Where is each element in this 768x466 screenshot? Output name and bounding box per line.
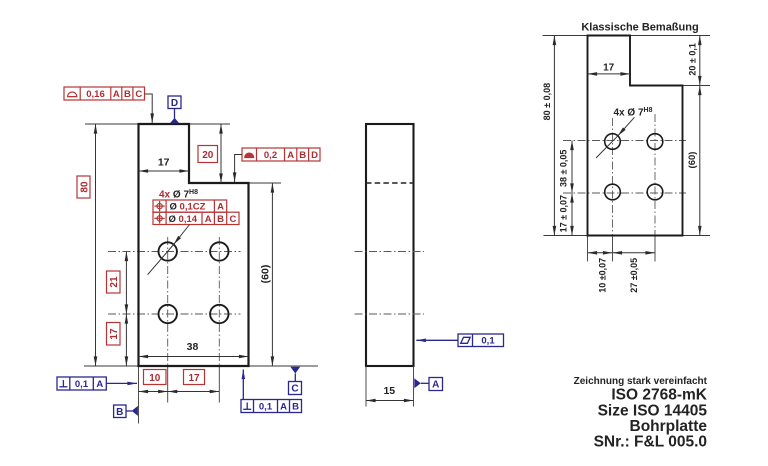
- svg-text:A: A: [280, 402, 287, 413]
- svg-text:A: A: [287, 150, 294, 161]
- svg-text:Ø 0,14: Ø 0,14: [169, 214, 198, 225]
- svg-text:D: D: [311, 150, 318, 161]
- svg-text:17 ± 0,07: 17 ± 0,07: [558, 195, 568, 232]
- svg-text:B: B: [299, 150, 306, 161]
- svg-text:80 ± 0,08: 80 ± 0,08: [542, 83, 552, 120]
- svg-text:17: 17: [603, 63, 615, 74]
- svg-text:17: 17: [109, 328, 120, 340]
- svg-text:B: B: [217, 214, 224, 225]
- svg-text:ISO 2768-mK: ISO 2768-mK: [611, 387, 707, 404]
- svg-text:0,1: 0,1: [75, 379, 89, 390]
- svg-text:(60): (60): [259, 265, 271, 284]
- svg-text:20: 20: [202, 150, 214, 161]
- svg-text:B: B: [292, 402, 299, 413]
- svg-text:B: B: [124, 89, 131, 100]
- svg-text:Bohrplatte: Bohrplatte: [630, 418, 708, 435]
- svg-text:Size ISO 14405: Size ISO 14405: [598, 403, 708, 420]
- svg-text:20 ± 0,1: 20 ± 0,1: [688, 43, 698, 75]
- svg-text:A: A: [205, 214, 212, 225]
- svg-text:A: A: [96, 379, 103, 390]
- svg-text:C: C: [229, 214, 236, 225]
- svg-text:80: 80: [79, 181, 90, 193]
- svg-text:C: C: [135, 89, 142, 100]
- svg-text:Ø 0,1CZ: Ø 0,1CZ: [170, 202, 206, 213]
- svg-text:Zeichnung stark vereinfacht: Zeichnung stark vereinfacht: [574, 376, 708, 387]
- svg-text:27 ±0,05: 27 ±0,05: [629, 258, 639, 293]
- svg-text:10: 10: [149, 373, 161, 384]
- svg-text:0,1: 0,1: [481, 336, 495, 347]
- svg-text:10 ±0,07: 10 ±0,07: [597, 258, 607, 293]
- svg-text:38 ± 0,05: 38 ± 0,05: [558, 150, 568, 187]
- svg-text:38: 38: [187, 341, 199, 353]
- svg-text:0,1: 0,1: [259, 402, 273, 413]
- svg-text:A: A: [217, 202, 224, 213]
- svg-text:21: 21: [109, 276, 120, 288]
- svg-text:0,16: 0,16: [86, 89, 105, 100]
- svg-text:Klassische Bemaßung: Klassische Bemaßung: [581, 22, 698, 34]
- svg-text:B: B: [116, 407, 123, 418]
- svg-text:0,2: 0,2: [264, 150, 277, 161]
- svg-text:17: 17: [188, 373, 200, 384]
- svg-text:A: A: [113, 89, 120, 100]
- svg-text:(60): (60): [687, 152, 698, 169]
- svg-text:17: 17: [158, 157, 170, 169]
- svg-text:SNr.: F&L 005.0: SNr.: F&L 005.0: [594, 434, 707, 451]
- svg-text:A: A: [432, 380, 439, 391]
- svg-text:C: C: [291, 384, 298, 395]
- svg-text:D: D: [171, 98, 178, 109]
- svg-text:15: 15: [383, 385, 395, 397]
